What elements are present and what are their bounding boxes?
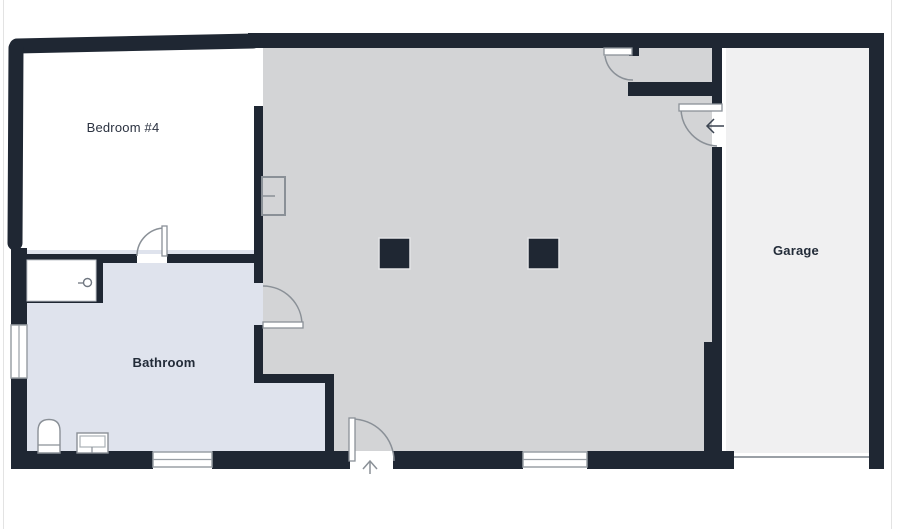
sink-vanity-icon bbox=[77, 433, 108, 453]
bedroom-4-label: Bedroom #4 bbox=[87, 120, 160, 135]
column-post-icon bbox=[379, 238, 410, 269]
wall-bathroom-top-right bbox=[167, 254, 261, 263]
wall-garage-left-lower bbox=[704, 342, 722, 469]
wall-west-lower bbox=[11, 378, 27, 454]
garage-label: Garage bbox=[773, 243, 819, 258]
bedroom-opening-gap bbox=[250, 48, 263, 106]
wall-garage-left-mid bbox=[712, 147, 722, 342]
door-leaf bbox=[679, 104, 722, 111]
floor-plan-page: Bedroom #4 Bathroom Garage bbox=[0, 0, 900, 529]
bathroom-bottom-window-icon bbox=[153, 452, 212, 467]
wall-bedroom-left bbox=[15, 48, 16, 243]
main-room-bottom-window-icon bbox=[523, 452, 587, 467]
wall-top bbox=[248, 33, 884, 48]
wall-closet-bottom bbox=[628, 82, 718, 96]
floor-plan: Bedroom #4 Bathroom Garage bbox=[0, 0, 900, 529]
shower-icon bbox=[27, 260, 96, 301]
wall-bathroom-right-bottom bbox=[325, 374, 334, 454]
wall-bottom-3 bbox=[336, 451, 350, 469]
left-wall-window-icon bbox=[11, 325, 27, 378]
door-leaf bbox=[162, 226, 167, 256]
wall-bedroom-top bbox=[17, 41, 253, 46]
bathroom-label: Bathroom bbox=[133, 355, 196, 370]
front-entry-opening bbox=[350, 451, 393, 469]
wall-garage-right bbox=[869, 40, 884, 469]
wall-bathroom-jog bbox=[254, 374, 334, 383]
toilet-icon bbox=[38, 420, 60, 454]
wall-bottom-1 bbox=[11, 451, 153, 469]
bedroom-4-floor bbox=[8, 36, 263, 260]
shower-control-icon bbox=[84, 279, 92, 287]
door-leaf bbox=[349, 418, 355, 461]
door-leaf bbox=[263, 322, 303, 328]
wall-bathroom-right-lower bbox=[254, 325, 263, 378]
wall-bottom-4 bbox=[393, 451, 523, 469]
wall-west-upper bbox=[11, 248, 27, 325]
wall-bottom-2 bbox=[212, 451, 336, 469]
bathroom-door-opening bbox=[254, 283, 263, 325]
wall-garage-bottom-stub bbox=[700, 451, 734, 469]
wall-garage-left-upper bbox=[712, 41, 722, 106]
column-post-icon bbox=[528, 238, 559, 269]
door-leaf bbox=[604, 48, 632, 55]
